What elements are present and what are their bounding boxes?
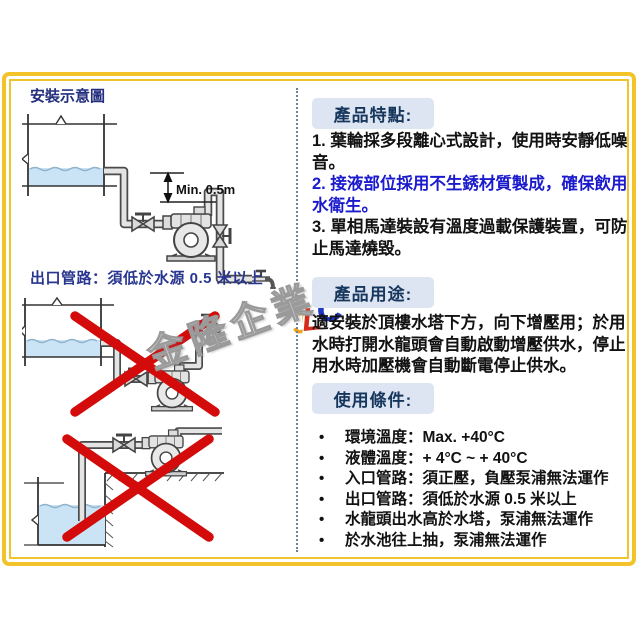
features-text: 1. 葉輪採多段離心式設計，使用時安靜低噪音。 2. 接液部位採用不生銹材質製成… bbox=[312, 131, 630, 260]
condition-item: 出口管路：須低於水源 0.5 米以上 bbox=[314, 490, 636, 511]
outlet-pipe-caption: 出口管路：須低於水源 0.5 米以上 bbox=[30, 267, 263, 288]
feature-item-1: 1. 葉輪採多段離心式設計，使用時安靜低噪音。 bbox=[312, 131, 630, 174]
product-info-page: 安裝示意圖 Min. 0.5m 出口管路：須低於水源 bbox=[0, 0, 640, 640]
pump-icon bbox=[163, 207, 215, 261]
usage-text: 適安裝於頂樓水塔下方，向下增壓用；於用水時打開水龍頭會自動啟動增壓供水，停止用水… bbox=[312, 313, 630, 378]
installation-diagram-title: 安裝示意圖 bbox=[30, 85, 105, 106]
condition-item: 入口管路：須正壓，負壓泵浦無法運作 bbox=[314, 469, 636, 490]
section-header-conditions: 使用條件: bbox=[312, 383, 434, 414]
condition-item: 環境溫度：Max. +40°C bbox=[314, 428, 636, 449]
section-header-features: 產品特點: bbox=[312, 98, 434, 129]
condition-item: 於水池往上抽，泵浦無法運作 bbox=[314, 531, 636, 552]
diagram-wrong-suction-lift bbox=[22, 425, 297, 563]
condition-item: 水龍頭出水高於水塔，泵浦無法運作 bbox=[314, 510, 636, 531]
red-cross bbox=[67, 439, 209, 537]
section-header-usage: 產品用途: bbox=[312, 277, 434, 308]
feature-item-3: 3. 單相馬達裝設有溫度過載保護裝置，可防止馬達燒毀。 bbox=[312, 217, 630, 260]
condition-item: 液體溫度：+ 4°C ~ + 40°C bbox=[314, 449, 636, 470]
dimension-label: Min. 0.5m bbox=[176, 182, 235, 197]
conditions-list: 環境溫度：Max. +40°C 液體溫度：+ 4°C ~ + 40°C 入口管路… bbox=[314, 428, 636, 552]
water-tank bbox=[22, 114, 117, 196]
feature-item-2: 2. 接液部位採用不生銹材質製成，確保飲用水衛生。 bbox=[312, 174, 630, 217]
